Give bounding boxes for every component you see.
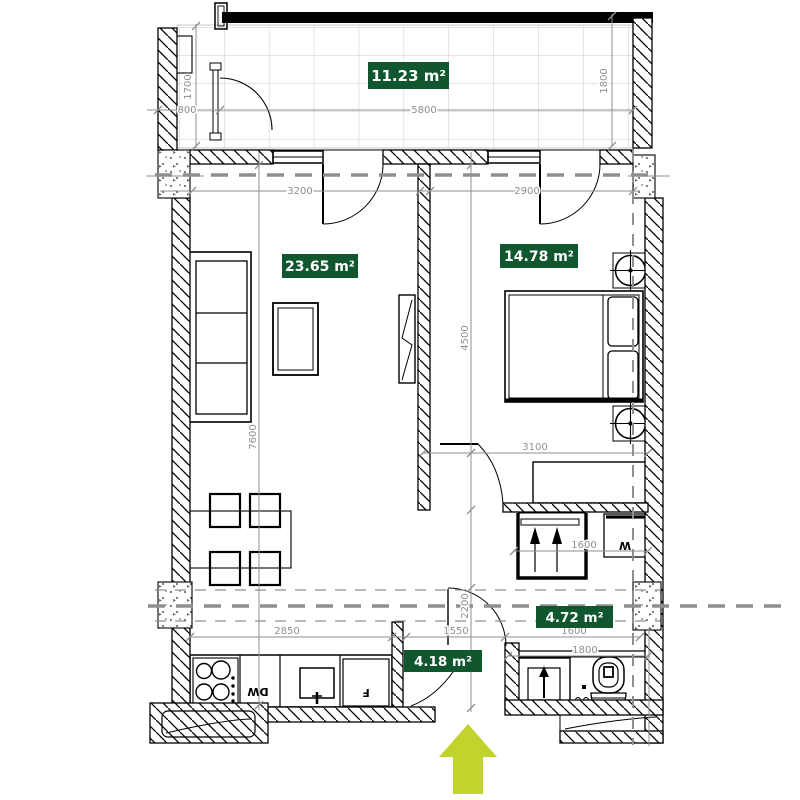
balcony-area-label: 11.23 m² (368, 62, 449, 89)
hallway-area-label: 4.72 m² (536, 606, 613, 628)
bedroom-area-text: 14.78 m² (504, 249, 574, 265)
dim-2200: 2200 (460, 593, 471, 618)
dim-1550: 1550 (443, 626, 468, 637)
dim-1800-balcony: 1800 (599, 68, 610, 93)
living-room (189, 252, 415, 585)
kitchen-area-text: 4.18 m² (414, 654, 472, 670)
dim-3200: 3200 (287, 186, 312, 197)
entrance-door-swing-arc (411, 669, 455, 706)
dim-7600: 7600 (248, 424, 259, 449)
floor-plan: W (0, 0, 800, 800)
hanger-icon (552, 527, 562, 572)
bedroom (505, 250, 651, 503)
door-swing-arc (540, 164, 600, 224)
bathroom-bottom-wall-outer (560, 731, 663, 743)
dishwasher-label: DW (247, 685, 268, 698)
dim-1700: 1700 (183, 74, 194, 99)
dim-1800-bath: 1800 (572, 645, 597, 656)
sink (300, 668, 334, 704)
entrance-porch (150, 703, 268, 743)
right-wall (645, 198, 663, 743)
kitchen-counter (190, 655, 392, 707)
hallway-area-text: 4.72 m² (546, 610, 604, 626)
window (273, 151, 323, 163)
stove (193, 658, 238, 704)
door-swing-arc (323, 164, 383, 224)
bathroom-bottom-wall (505, 700, 663, 715)
left-wall (172, 198, 190, 710)
kitchen-bottom-wall (250, 707, 435, 722)
top-wall (600, 150, 633, 164)
floor-plan-drawing: W (0, 0, 800, 800)
top-wall (383, 150, 488, 164)
closet-rod (521, 519, 579, 525)
dim-3100: 3100 (522, 442, 547, 453)
living-bedroom-partition (418, 164, 430, 510)
bedroom-area-label: 14.78 m² (500, 244, 578, 268)
dim-2850: 2850 (274, 626, 299, 637)
dim-800: 800 (177, 105, 196, 116)
dim-4500: 4500 (460, 325, 471, 350)
kitchen-area-label: 4.18 m² (404, 650, 482, 672)
balcony-area-text: 11.23 m² (371, 67, 446, 85)
sofa (189, 252, 251, 422)
bedroom-bottom-wall (503, 503, 648, 512)
hanger-icon (530, 527, 540, 572)
coffee-table (273, 303, 318, 375)
entrance-arrow-icon (439, 724, 497, 794)
living-area-label: 23.65 m² (282, 254, 358, 278)
living-area-text: 23.65 m² (285, 259, 355, 275)
bedroom-balcony-door (540, 164, 600, 224)
washer-label: W (619, 539, 631, 552)
dim-1600-closet: 1600 (571, 540, 596, 551)
balcony-railing (222, 12, 653, 23)
fridge-label: F (362, 686, 370, 699)
kitchen: DW F (190, 655, 392, 707)
tv (399, 295, 415, 383)
balcony-left-wall (158, 28, 177, 150)
bedroom-wardrobe (533, 462, 648, 503)
balcony-right-wall (633, 18, 652, 148)
dining-chairs (210, 494, 280, 585)
top-wall (190, 150, 273, 164)
bed (505, 291, 643, 402)
living-balcony-door (323, 164, 383, 224)
fridge: F (343, 659, 389, 706)
dim-5800: 5800 (411, 105, 436, 116)
dim-2900: 2900 (514, 186, 539, 197)
window (488, 151, 540, 163)
